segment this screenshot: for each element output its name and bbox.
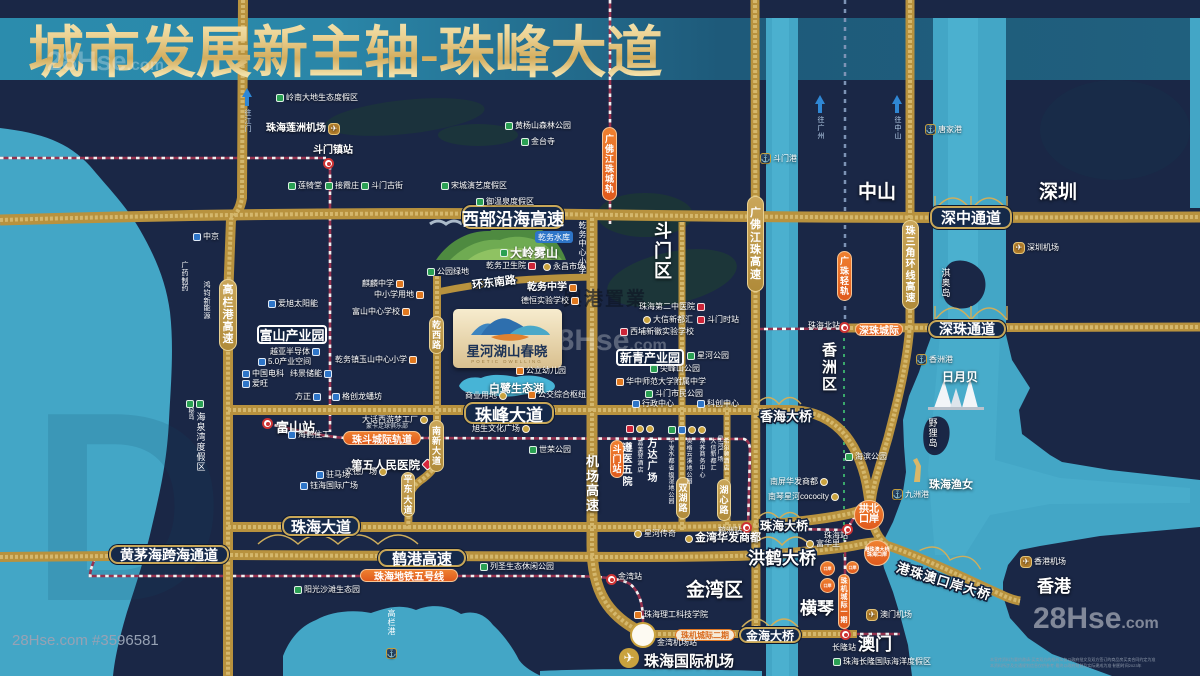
svg-text:POETIC DWELLING: POETIC DWELLING xyxy=(471,359,543,364)
svg-text:星河湖山春晓: 星河湖山春晓 xyxy=(467,343,548,359)
